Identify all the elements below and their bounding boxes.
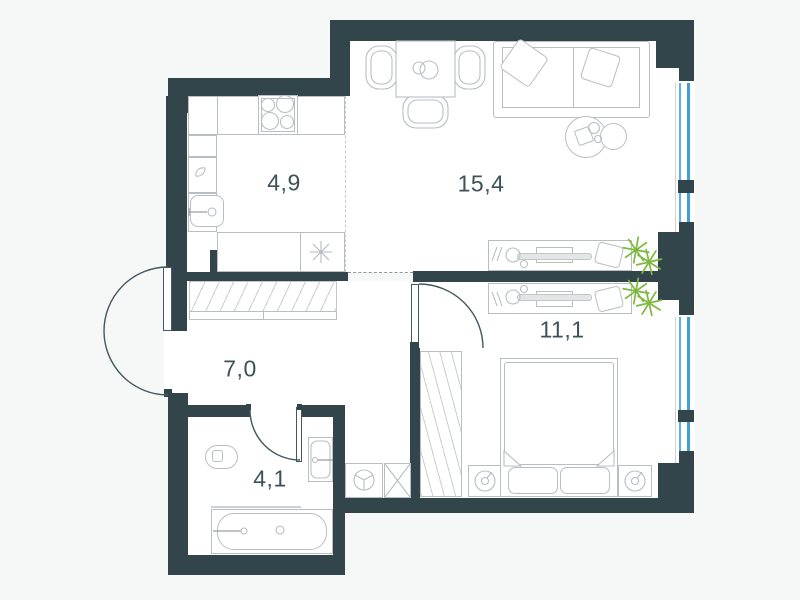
fridge-asterisk-icon [310, 241, 332, 263]
room-label-living: 15,4 [458, 171, 505, 198]
plant-icon [621, 235, 667, 280]
desk-items [492, 247, 528, 268]
bedroom-door-arc [419, 284, 483, 348]
kitchen-faucet [189, 208, 216, 216]
room-label-kitchen: 4,9 [267, 170, 300, 197]
stove-burners [262, 96, 294, 130]
room-label-hallway: 7,0 [223, 356, 256, 383]
lamp-icon [625, 471, 645, 491]
desk-items [492, 286, 528, 307]
plan-lineart [0, 0, 800, 600]
shaft-cross-icon [385, 464, 410, 497]
plant-icon [621, 276, 667, 321]
coffee-cup [589, 123, 600, 134]
floor-plan: 4,9 15,4 11,1 7,0 4,1 [0, 0, 800, 600]
lamp-icon [475, 471, 495, 491]
dining-set-icon [366, 41, 485, 128]
bathtub-fittings [213, 526, 284, 534]
blanket-fold [504, 451, 521, 466]
blanket-fold [597, 451, 614, 466]
entrance-door-arc [104, 267, 168, 395]
drop-icon [196, 168, 205, 176]
washer-drum-icon [354, 470, 374, 490]
room-label-bedroom: 11,1 [539, 317, 584, 344]
bath-sink-faucet [311, 441, 333, 478]
bathroom-door-arc [250, 410, 300, 460]
room-label-bathroom: 4,1 [253, 466, 286, 493]
coffee-cup [595, 136, 602, 143]
